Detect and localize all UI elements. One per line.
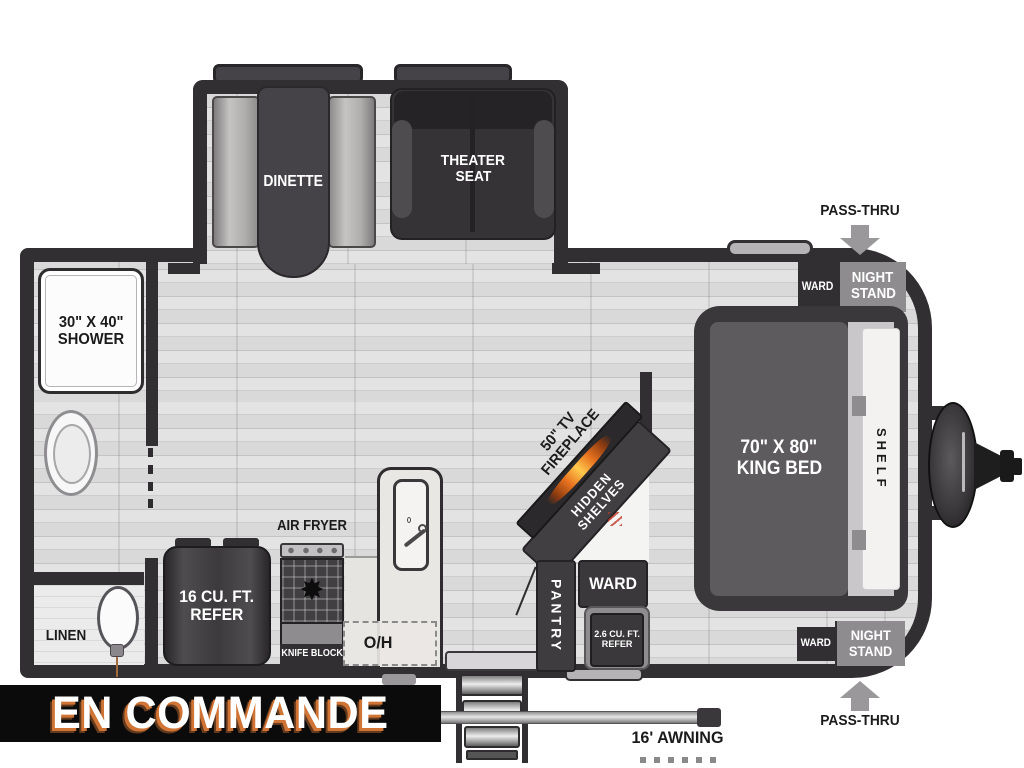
- entry-step-base: [466, 750, 518, 760]
- utility-hookup-icon: [382, 674, 416, 685]
- pass-thru-top-label: PASS-THRU: [800, 203, 920, 219]
- window-icon: [727, 240, 813, 257]
- king-bed-label: KING BED: [736, 459, 821, 480]
- door-threshold: [445, 651, 543, 671]
- wardrobe-bottom: WARD: [797, 627, 835, 661]
- hitch-tip-icon: [1013, 458, 1022, 475]
- shower: 30" X 40" SHOWER: [38, 268, 144, 394]
- tank-cover-seam: [962, 432, 965, 492]
- theater-seat-label-text: THEATER: [441, 153, 505, 169]
- king-bed-label: 70" X 80": [741, 438, 818, 459]
- burner-star-icon: ✸: [299, 576, 324, 606]
- nightstand-bottom: NIGHT STAND: [835, 621, 905, 666]
- linen-label: LINEN: [37, 628, 95, 644]
- refrigerator-label: REFER: [190, 606, 243, 624]
- nightstand-bottom-label: STAND: [849, 644, 892, 659]
- drain-line: [116, 657, 118, 677]
- galley-wall: [145, 558, 158, 668]
- status-banner: EN COMMANDE: [0, 685, 441, 742]
- status-banner-label: EN COMMANDE: [52, 689, 388, 738]
- nightstand-bottom-label: NIGHT: [851, 628, 891, 643]
- theater-seat-label: THEATER SEAT: [408, 146, 538, 192]
- pantry: PANTRY: [536, 560, 576, 672]
- awning-end-cap: [697, 708, 721, 727]
- dinette-label: DINETTE: [264, 174, 324, 191]
- nightstand-top-label: STAND: [851, 287, 896, 303]
- pocket-door-dashed: [148, 448, 153, 508]
- refrigerator-label: 16 CU. FT.: [180, 588, 255, 606]
- dinette-bench: [212, 96, 260, 248]
- bath-sink-icon: [97, 586, 139, 650]
- shower-label: 30" X 40": [59, 314, 124, 331]
- dinette-bench: [328, 96, 376, 248]
- mini-refer-label: REFER: [602, 640, 633, 650]
- awning-label: 16' AWNING: [599, 729, 756, 747]
- door-handle-ring-icon: [418, 524, 427, 533]
- air-fryer-label: AIR FRYER: [269, 519, 355, 535]
- awning-cutoff-marks: [640, 757, 720, 763]
- outlet-marker: [608, 512, 622, 526]
- overhead-cabinet: O/H: [343, 621, 437, 666]
- pass-thru-bottom-arrowhead-icon: [840, 681, 880, 698]
- wardrobe-top-label: WARD: [802, 281, 834, 293]
- pass-thru-top-arrow-icon: [851, 225, 869, 238]
- range-front-band: [280, 624, 344, 644]
- theater-seat-label-text: SEAT: [455, 169, 491, 185]
- pass-thru-bottom-arrow-icon: [851, 698, 869, 711]
- wall-junction: [552, 263, 600, 274]
- shelf-label: SHELF: [874, 428, 888, 491]
- awning-bar: [434, 711, 718, 724]
- headboard-shelf: SHELF: [862, 328, 900, 590]
- bathroom-wall: [146, 262, 158, 446]
- shelf-bracket: [852, 396, 866, 416]
- king-bed: 70" X 80" KING BED: [710, 322, 848, 596]
- pantry-label: PANTRY: [548, 579, 563, 653]
- pass-thru-bottom-label: PASS-THRU: [798, 713, 921, 729]
- mini-refer: 2.6 CU. FT. REFER: [590, 613, 644, 667]
- range-cooktop-icon: ✸: [280, 558, 344, 624]
- dinette-table: DINETTE: [257, 86, 330, 278]
- knife-block-label: KNIFE BLOCK: [281, 649, 343, 660]
- shelf-bracket: [852, 530, 866, 550]
- wardrobe-mid-label: WARD: [589, 575, 637, 593]
- wall-junction: [168, 263, 200, 274]
- vanity-wall: [34, 572, 144, 585]
- door-keyhole-icon: [407, 517, 411, 523]
- entry-step: [464, 726, 520, 748]
- faucet-icon: [110, 644, 124, 657]
- knife-block: KNIFE BLOCK: [280, 644, 344, 665]
- refrigerator: 16 CU. FT. REFER: [163, 546, 271, 666]
- overhead-label: O/H: [364, 634, 393, 652]
- range-back-panel: [280, 543, 344, 558]
- nightstand-top: NIGHT STAND: [838, 262, 906, 312]
- nightstand-top-label: NIGHT: [852, 271, 894, 287]
- entry-step: [460, 674, 524, 696]
- toilet-bowl-icon: [53, 424, 91, 484]
- hitch-coupler-icon: [974, 442, 1002, 490]
- wardrobe-top: WARD: [798, 262, 838, 312]
- pass-thru-top-arrowhead-icon: [840, 238, 880, 255]
- wardrobe-bottom-label: WARD: [801, 638, 831, 650]
- shower-label: SHOWER: [58, 331, 124, 348]
- floorplan-canvas: 16' AWNING EN COMMANDE 30" X 40" SHOWER …: [0, 0, 1024, 768]
- propane-tank-cover-icon: [928, 402, 978, 528]
- hitch-ball-socket-icon: [1000, 450, 1014, 482]
- wardrobe-mid: WARD: [578, 560, 648, 608]
